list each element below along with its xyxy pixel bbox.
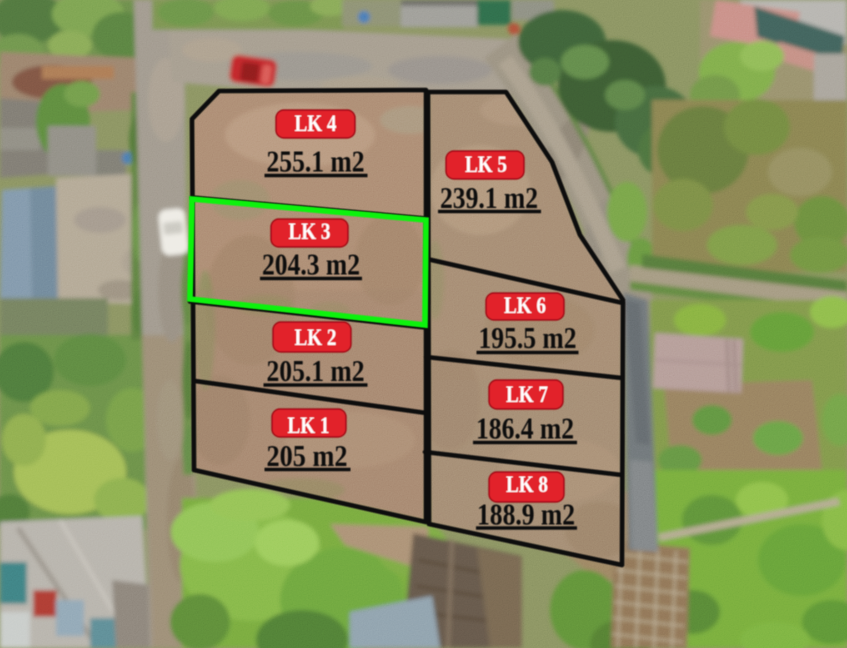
svg-text:LK 5: LK 5: [465, 152, 507, 177]
svg-text:195.5 m2: 195.5 m2: [479, 320, 577, 355]
svg-text:204.3 m2: 204.3 m2: [262, 247, 360, 282]
svg-text:255.1 m2: 255.1 m2: [267, 144, 365, 179]
svg-text:LK 7: LK 7: [506, 382, 548, 407]
svg-text:LK 8: LK 8: [506, 472, 548, 497]
svg-text:LK 1: LK 1: [288, 413, 330, 438]
svg-text:LK 2: LK 2: [295, 325, 337, 350]
svg-text:186.4 m2: 186.4 m2: [476, 411, 574, 446]
svg-text:LK 3: LK 3: [289, 219, 331, 244]
svg-text:LK 4: LK 4: [295, 111, 337, 136]
svg-text:LK 6: LK 6: [504, 293, 546, 318]
svg-text:205.1 m2: 205.1 m2: [267, 353, 365, 388]
